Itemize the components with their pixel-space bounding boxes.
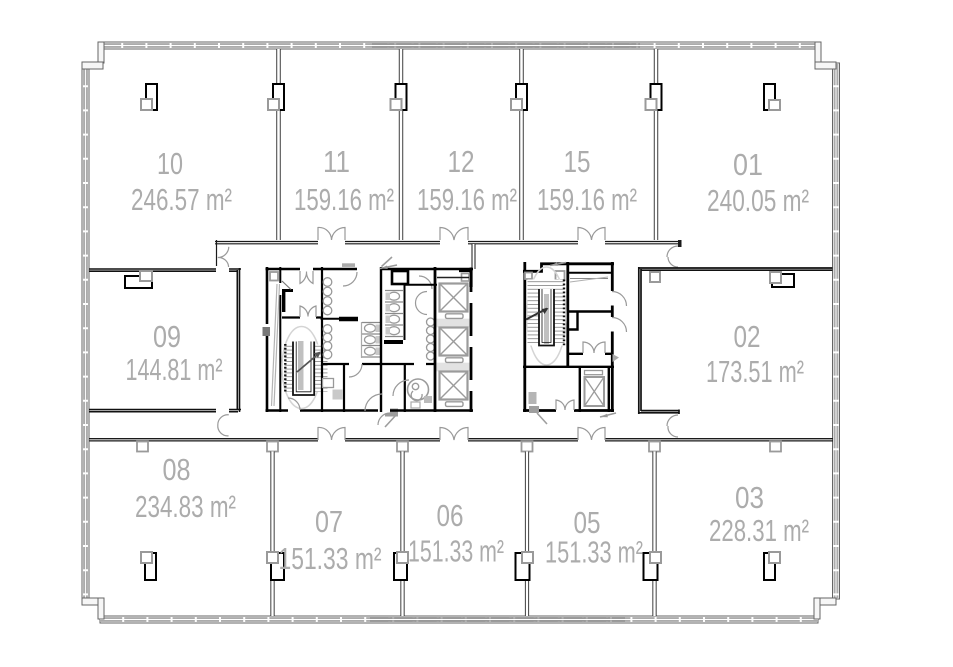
svg-text:228.31 m²: 228.31 m² bbox=[709, 513, 809, 548]
svg-text:151.33 m²: 151.33 m² bbox=[279, 541, 382, 576]
svg-text:15: 15 bbox=[564, 144, 591, 179]
svg-text:240.05 m²: 240.05 m² bbox=[707, 183, 809, 218]
svg-text:01: 01 bbox=[733, 147, 763, 182]
svg-text:159.16 m²: 159.16 m² bbox=[537, 182, 637, 217]
svg-text:151.33 m²: 151.33 m² bbox=[545, 535, 643, 570]
svg-text:07: 07 bbox=[315, 504, 343, 539]
svg-text:03: 03 bbox=[735, 480, 764, 515]
svg-text:09: 09 bbox=[153, 319, 181, 354]
svg-text:159.16 m²: 159.16 m² bbox=[294, 182, 394, 217]
svg-text:02: 02 bbox=[734, 319, 761, 354]
svg-text:173.51 m²: 173.51 m² bbox=[706, 354, 804, 389]
svg-text:234.83 m²: 234.83 m² bbox=[135, 489, 236, 524]
svg-text:159.16 m²: 159.16 m² bbox=[417, 182, 517, 217]
svg-text:151.33 m²: 151.33 m² bbox=[408, 534, 504, 569]
svg-text:12: 12 bbox=[448, 144, 475, 179]
svg-text:144.81 m²: 144.81 m² bbox=[126, 352, 223, 387]
svg-text:08: 08 bbox=[163, 452, 191, 487]
svg-text:11: 11 bbox=[323, 144, 350, 179]
svg-text:06: 06 bbox=[437, 498, 464, 533]
svg-text:10: 10 bbox=[157, 146, 183, 181]
svg-text:246.57 m²: 246.57 m² bbox=[131, 182, 232, 217]
